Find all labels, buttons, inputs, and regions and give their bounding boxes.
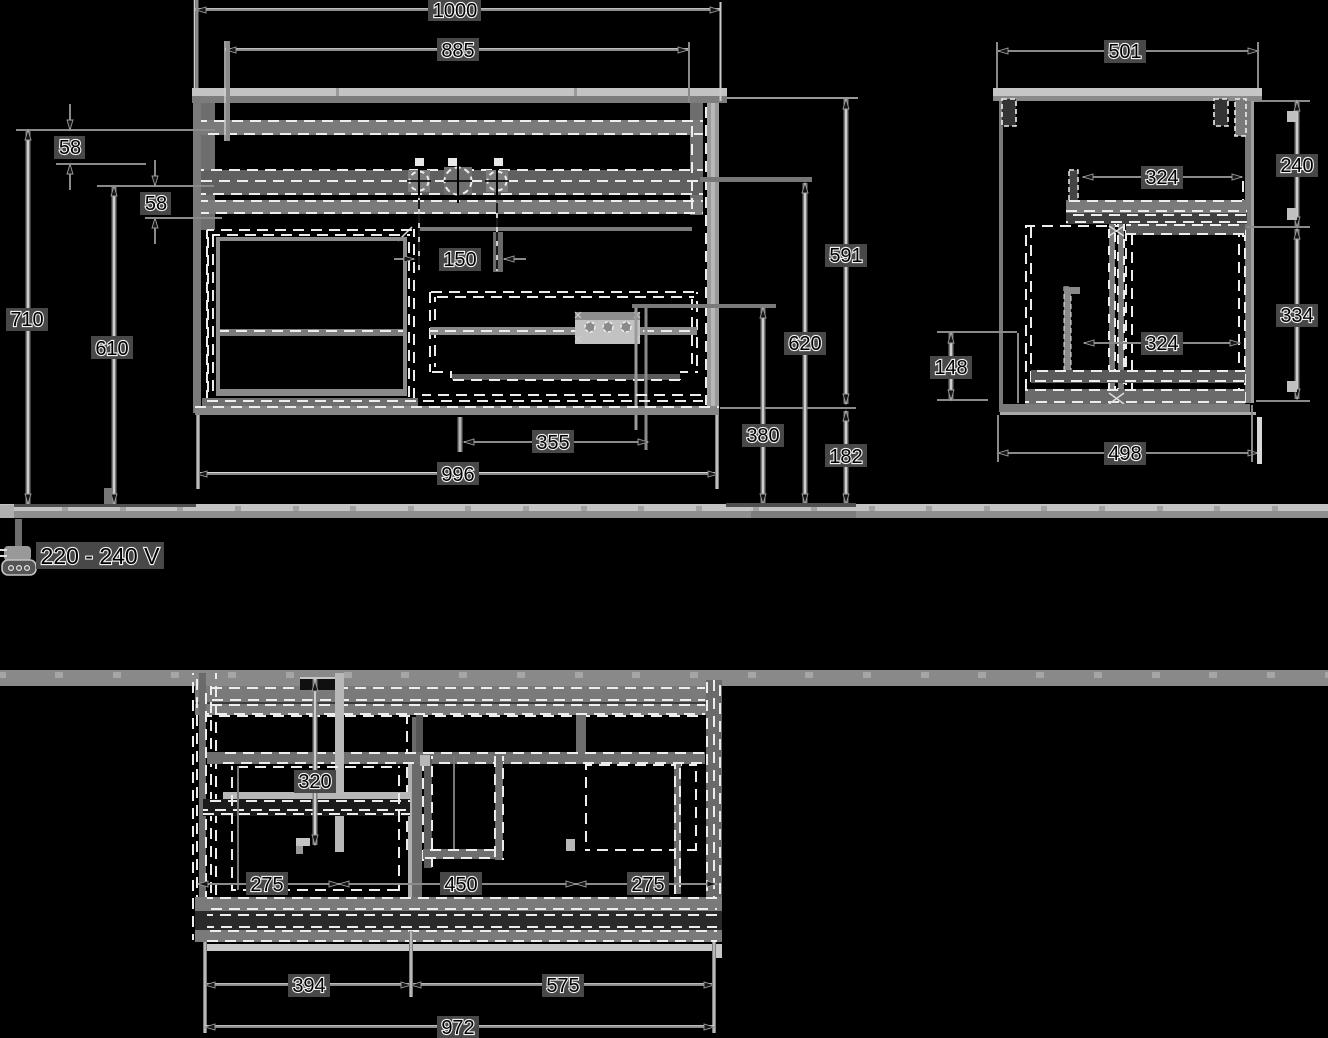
svg-text:591: 591 [829, 245, 862, 267]
svg-text:150: 150 [443, 249, 476, 271]
svg-text:324: 324 [1145, 333, 1178, 355]
svg-text:1000: 1000 [433, 0, 478, 22]
svg-text:575: 575 [546, 975, 579, 997]
svg-text:240: 240 [1280, 155, 1313, 177]
svg-text:501: 501 [1108, 41, 1141, 63]
svg-text:885: 885 [441, 40, 474, 62]
svg-text:324: 324 [1145, 167, 1178, 189]
svg-text:220 - 240 V: 220 - 240 V [41, 543, 161, 569]
svg-text:710: 710 [10, 309, 43, 331]
svg-text:275: 275 [250, 874, 283, 896]
svg-text:620: 620 [788, 333, 821, 355]
svg-text:498: 498 [1108, 443, 1141, 465]
svg-text:334: 334 [1280, 305, 1313, 327]
svg-text:450: 450 [444, 874, 477, 896]
svg-text:355: 355 [536, 432, 569, 454]
svg-text:380: 380 [746, 425, 779, 447]
svg-text:320: 320 [298, 771, 331, 793]
svg-text:996: 996 [441, 464, 474, 486]
svg-text:182: 182 [829, 446, 862, 468]
svg-text:394: 394 [292, 975, 325, 997]
svg-text:148: 148 [934, 357, 967, 379]
svg-text:275: 275 [631, 874, 664, 896]
svg-text:972: 972 [441, 1017, 474, 1038]
svg-text:58: 58 [59, 137, 81, 159]
svg-text:58: 58 [145, 193, 167, 215]
svg-text:610: 610 [95, 338, 128, 360]
